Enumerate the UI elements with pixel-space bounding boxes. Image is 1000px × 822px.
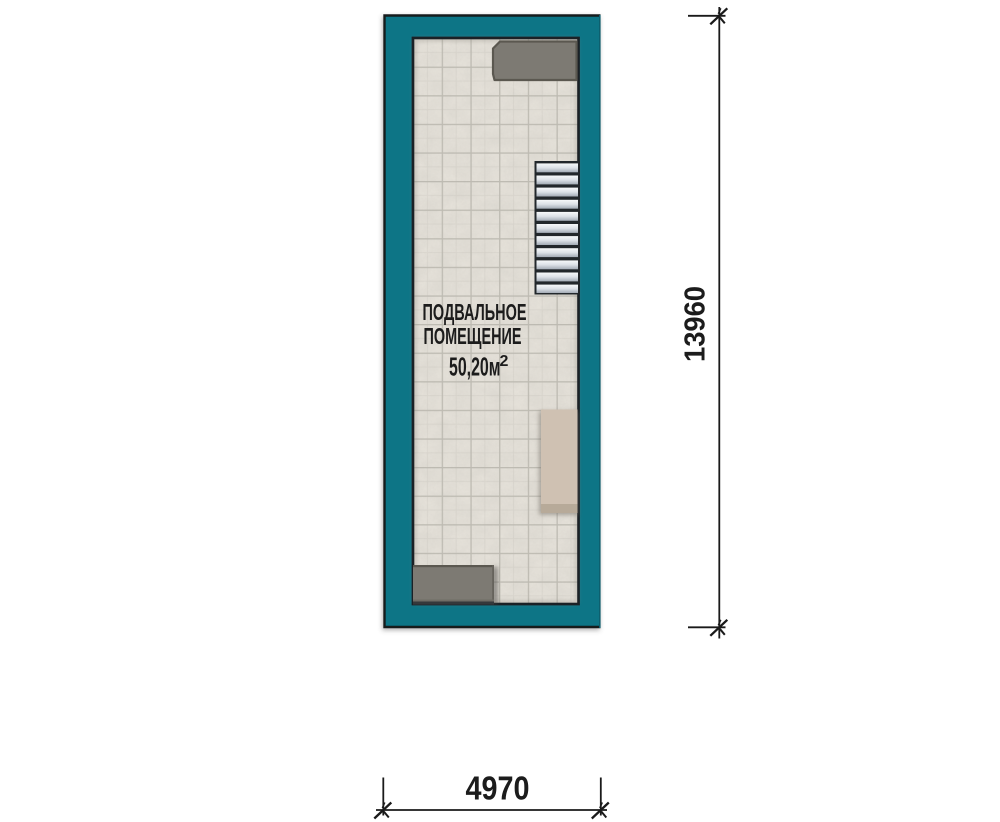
svg-text:ПОДВАЛЬНОЕ: ПОДВАЛЬНОЕ [423, 299, 527, 325]
svg-text:50,20м: 50,20м [449, 352, 501, 382]
svg-text:4970: 4970 [466, 770, 530, 807]
svg-text:2: 2 [500, 353, 509, 370]
svg-text:13960: 13960 [680, 286, 712, 362]
svg-text:ПОМЕЩЕНИЕ: ПОМЕЩЕНИЕ [424, 323, 522, 349]
